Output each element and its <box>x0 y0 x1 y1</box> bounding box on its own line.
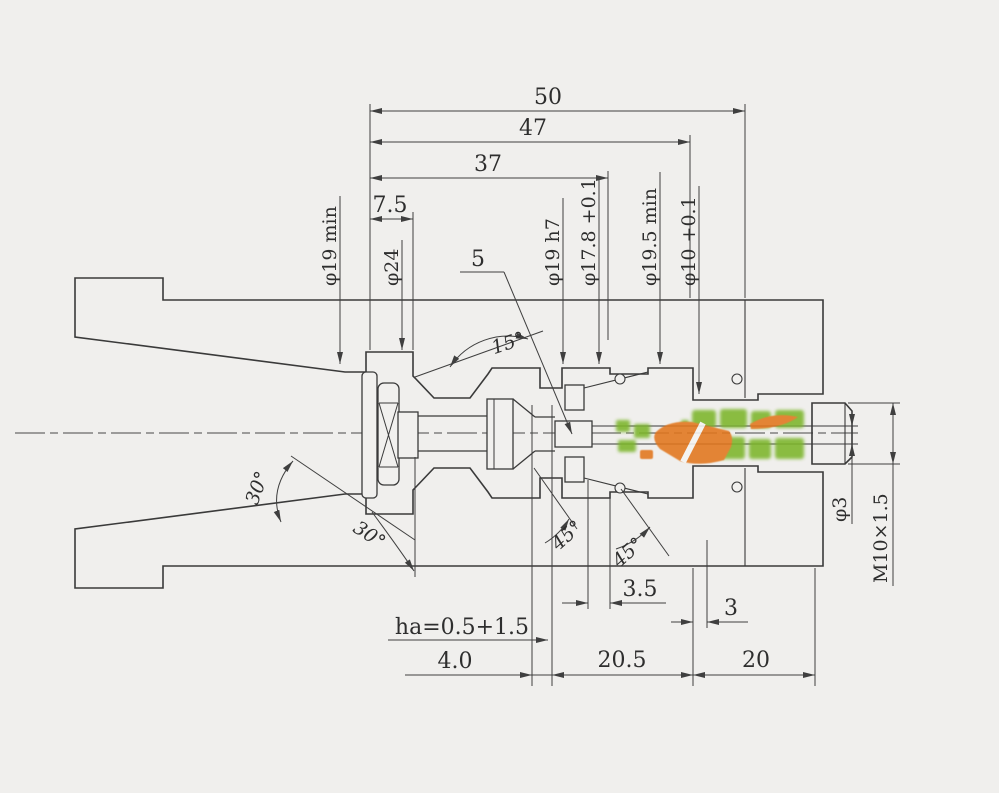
dim-length-47: 47 <box>519 116 547 141</box>
body-lower-half <box>75 466 823 588</box>
thread-relief-upper <box>732 374 742 384</box>
dim-20-5: 20.5 <box>598 648 647 673</box>
valve-cross-section-drawing: 50 47 37 7.5 φ19 min φ24 φ19 h7 φ17.8 +0… <box>0 0 999 793</box>
label-dia24: φ24 <box>381 249 403 286</box>
watermark-logo <box>616 409 804 464</box>
dim-3-5: 3.5 <box>623 577 658 602</box>
dim-ha: ha=0.5+1.5 <box>395 615 529 640</box>
watermark-orange-mark <box>640 415 798 464</box>
label-dia19-5-min: φ19.5 min <box>639 188 661 286</box>
seal-ring-upper <box>565 385 584 410</box>
dim-length-7-5: 7.5 <box>373 193 408 218</box>
label-thread-m10: M10×1.5 <box>870 493 892 583</box>
seat-stem <box>555 421 592 447</box>
label-dia10: φ10 +0.1 <box>678 196 700 286</box>
dim-20: 20 <box>742 648 770 673</box>
spindle-collar <box>398 412 418 458</box>
label-dia19-min: φ19 min <box>319 206 341 286</box>
right-callouts: φ3 M10×1.5 <box>829 403 900 586</box>
label-dia17-8: φ17.8 +0.1 <box>578 178 600 286</box>
poppet-disc <box>487 399 513 469</box>
dim-length-37: 37 <box>474 152 502 177</box>
label-dia19-h7: φ19 h7 <box>542 218 564 286</box>
engineering-drawing-page: 50 47 37 7.5 φ19 min φ24 φ19 h7 φ17.8 +0… <box>0 0 999 793</box>
seal-ring-lower <box>565 457 584 482</box>
body-upper-half <box>75 278 823 400</box>
gland-follower <box>362 372 377 498</box>
dim-4-0: 4.0 <box>438 649 473 674</box>
spring-wire-lower <box>615 483 625 493</box>
angle-30-lower: 30° <box>349 517 389 554</box>
spring-wire-upper <box>615 374 625 384</box>
label-dia3: φ3 <box>829 497 851 522</box>
angle-15: 15° <box>489 328 528 359</box>
dim-overall-length: 50 <box>534 85 562 110</box>
thread-relief-lower <box>732 482 742 492</box>
dim-3: 3 <box>724 596 738 621</box>
angle-annotations: 15° 30° 30° 45° 45° <box>241 328 669 577</box>
label-item-5: 5 <box>471 247 485 272</box>
angle-30-upper: 30° <box>241 468 273 507</box>
poppet-cone <box>513 399 555 469</box>
